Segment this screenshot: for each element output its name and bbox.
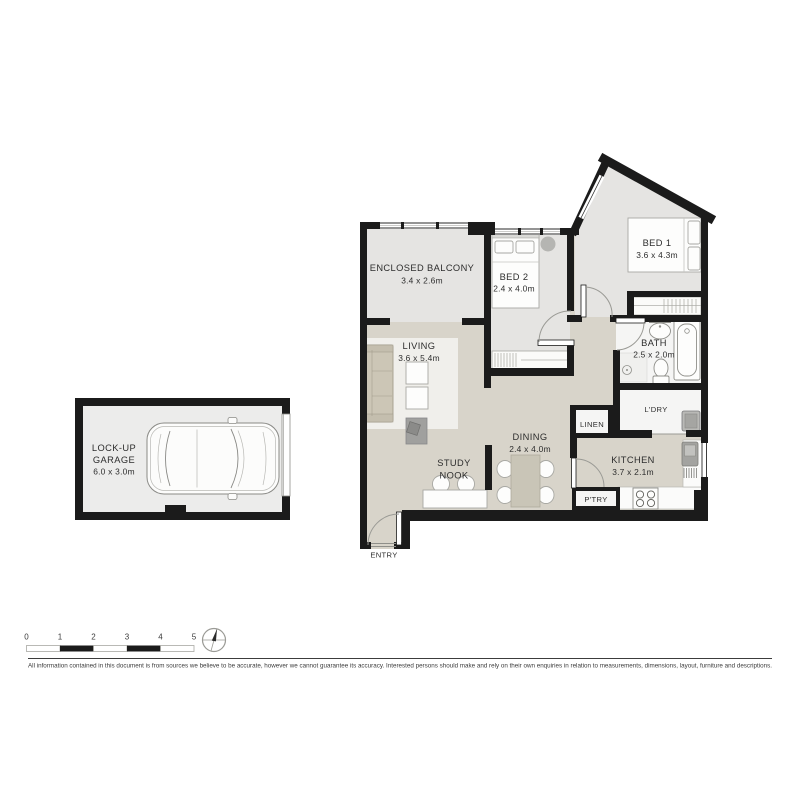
garage-door <box>282 414 290 496</box>
study-desk <box>423 490 487 508</box>
label-living-dims: 3.6 x 5.4m <box>398 353 440 363</box>
label-garage-dims: 6.0 x 3.0m <box>93 467 135 477</box>
label-living: LIVING <box>403 341 436 351</box>
coffee-table <box>406 387 428 409</box>
label-linen: LINEN <box>580 420 604 429</box>
dining-chair <box>538 487 554 504</box>
car <box>147 418 279 500</box>
scale-tick-2: 2 <box>91 633 96 642</box>
garage-labels: LOCK-UP GARAGE 6.0 x 3.0m <box>92 443 136 477</box>
wardrobe-bed1 <box>630 297 701 315</box>
scale-tick-5: 5 <box>192 633 197 642</box>
label-bath-dims: 2.5 x 2.0m <box>633 350 675 360</box>
floorplan-drawing: ENCLOSED BALCONY 3.4 x 2.6m BED 2 2.4 x … <box>0 0 800 800</box>
label-pantry: P'TRY <box>584 495 607 504</box>
label-kitchen: KITCHEN <box>611 455 655 465</box>
balcony-window <box>380 222 468 229</box>
label-bed1: BED 1 <box>643 238 672 248</box>
label-bath: BATH <box>641 338 667 348</box>
bathtub <box>674 320 700 380</box>
label-dining: DINING <box>513 432 548 442</box>
dining-table <box>511 455 540 507</box>
wardrobe-bed2 <box>492 351 570 369</box>
footer: All information contained in this docume… <box>28 659 772 670</box>
washing-machine <box>682 411 700 431</box>
apartment-floorplan: ENCLOSED BALCONY 3.4 x 2.6m BED 2 2.4 x … <box>360 159 710 560</box>
scale-tick-1: 1 <box>58 633 63 642</box>
scale-tick-0: 0 <box>24 633 29 642</box>
floor-balcony <box>364 226 487 322</box>
label-bed2: BED 2 <box>500 272 529 282</box>
coffee-table <box>406 362 428 384</box>
sofa <box>366 345 393 422</box>
disclaimer: All information contained in this docume… <box>28 663 772 670</box>
label-kitchen-dims: 3.7 x 2.1m <box>612 467 654 477</box>
label-laundry: L'DRY <box>644 405 667 414</box>
scale-bar: 0 1 2 3 4 5 <box>24 633 197 652</box>
scale-tick-4: 4 <box>158 633 163 642</box>
kitchen-window <box>700 443 709 477</box>
label-balcony: ENCLOSED BALCONY <box>370 263 475 273</box>
floorplan-page: ENCLOSED BALCONY 3.4 x 2.6m BED 2 2.4 x … <box>0 0 800 800</box>
stool <box>541 237 556 252</box>
label-bed2-dims: 2.4 x 4.0m <box>493 284 535 294</box>
label-garage-line1: LOCK-UP <box>92 443 136 453</box>
label-study-line2: NOOK <box>440 471 469 481</box>
kitchen-counter-bottom <box>618 487 704 509</box>
garage-floorplan: LOCK-UP GARAGE 6.0 x 3.0m <box>75 398 290 520</box>
bed2-window <box>495 228 560 235</box>
label-balcony-dims: 3.4 x 2.6m <box>401 276 443 286</box>
tv-unit <box>406 418 427 444</box>
label-dining-dims: 2.4 x 4.0m <box>509 444 551 454</box>
scale-tick-3: 3 <box>125 633 130 642</box>
label-study-line1: STUDY <box>437 458 471 468</box>
label-bed1-dims: 3.6 x 4.3m <box>636 250 678 260</box>
north-compass-icon <box>203 629 226 652</box>
stove <box>633 488 658 509</box>
label-garage-line2: GARAGE <box>93 455 135 465</box>
bed-2 <box>492 233 539 308</box>
label-entry: ENTRY <box>370 551 397 560</box>
dining-chair <box>538 461 554 478</box>
toilet <box>653 359 669 384</box>
